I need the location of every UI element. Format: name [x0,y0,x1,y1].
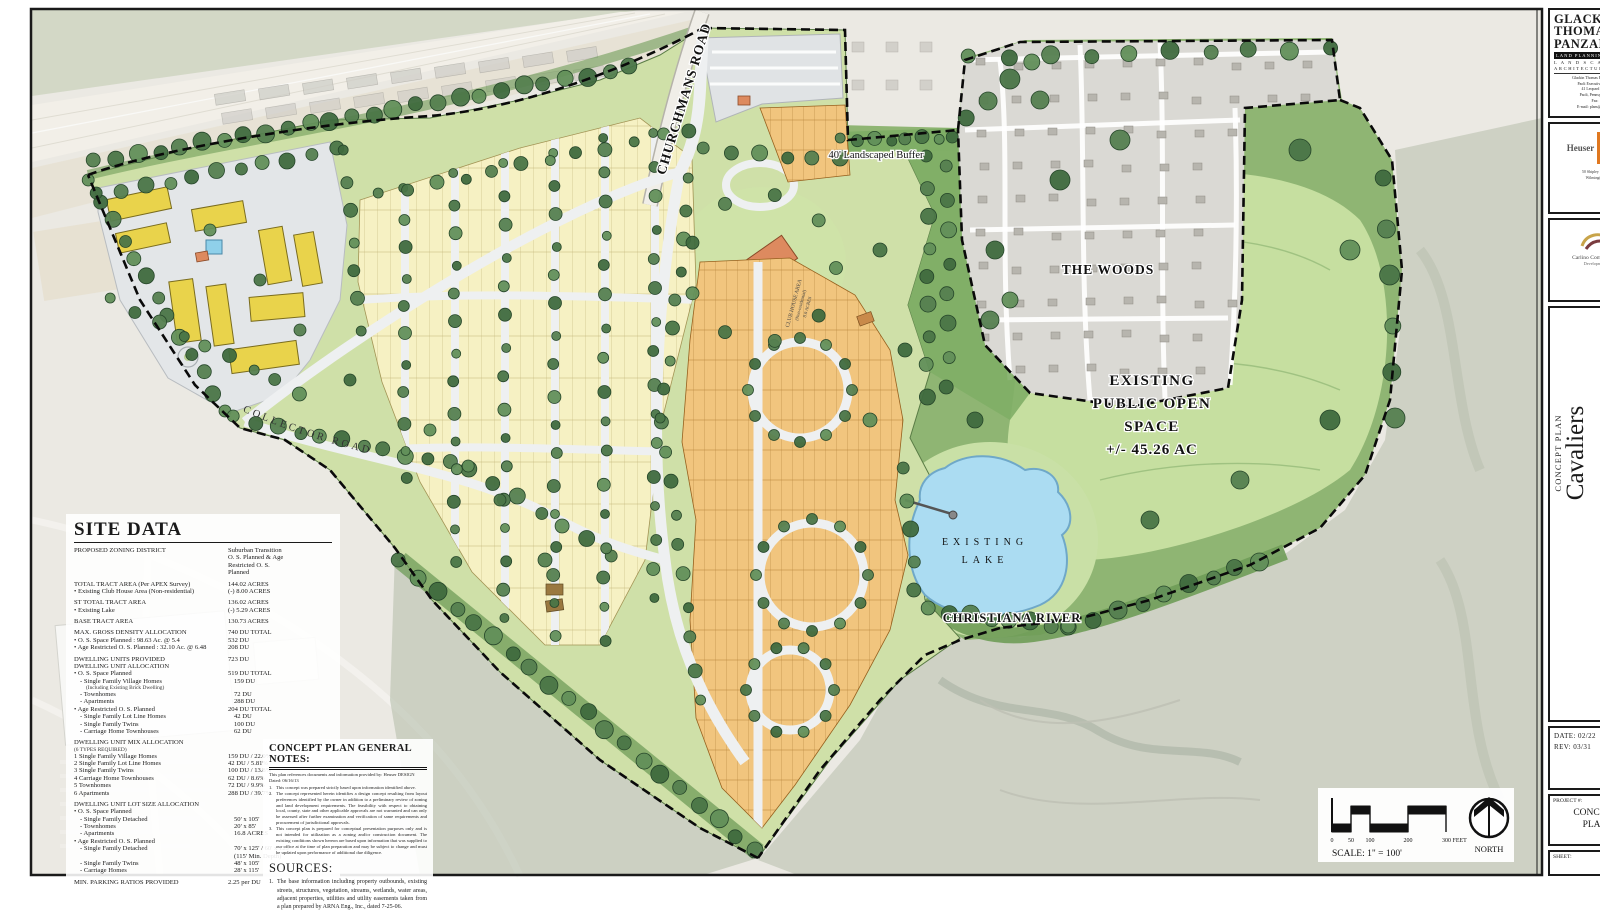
open-space-label-4: +/- 45.26 AC [1106,442,1198,458]
site-data-row: MAX. GROSS DENSITY ALLOCATION 740 DU TOT… [74,629,332,636]
pool [206,240,222,254]
site-data-row: - Townhomes 72 DU [74,691,332,698]
site-data-row: - Single Family Lot Line Homes 42 DU [74,713,332,720]
open-space-label-2: PUBLIC OPEN [1093,396,1212,412]
site-data-row: - Carriage Home Townhouses 62 DU [74,728,332,735]
landscaped-buffer-label: 40' Landscaped Buffer [829,150,925,161]
project-title-vertical: CONCEPT PLAN Cavaliers [1553,328,1589,578]
north-arrow: NORTH [1470,797,1508,854]
site-data-row: • Age Restricted O. S. Planned 204 DU TO… [74,706,332,713]
sources-title: SOURCES: [269,861,427,876]
rev-label: REV: [1554,743,1571,751]
scale-north-box: 0 50 100 200 300 FEET SCALE: 1" = 100' N… [1318,788,1514,862]
date-value: 02/22 [1578,732,1596,740]
site-data-row: - Single Family Twins 100 DU [74,721,332,728]
site-data-row: - Apartments 288 DU [74,698,332,705]
site-data-row: • Existing Lake (-) 5.29 ACRES [74,607,332,614]
titleblock-logo-carlino: Carlino Commercial Development [1548,218,1600,302]
project-number-label: PROJECT #: [1550,796,1600,804]
titleblock-sheet-box: SHEET: [1548,850,1600,876]
site-data-row: BASE TRACT AREA 130.73 ACRES [74,618,332,625]
notes-list: 1. This concept was prepared strictly ba… [269,785,427,856]
notes-intro: This plan references documents and infor… [269,772,427,784]
project-box-line-2: PLAN [1550,820,1600,832]
source-item: 1. The base information including proper… [269,878,427,910]
site-data-row: • O. S. Space Planned : 98.63 Ac. @ 5.4 … [74,637,332,644]
site-data-row: DWELLING UNITS PROVIDED 723 DU [74,656,332,663]
scale-tick-50: 50 [1348,838,1354,844]
site-data-title: SITE DATA [74,519,332,543]
heuser-address: 50 Shipley RoadWilmington [1550,170,1600,182]
firm-address: Glackin Thomas Panzak, Inc.Paoli Executi… [1554,76,1600,111]
site-data-row: • Existing Club House Area (Non-resident… [74,588,332,595]
north-label: NORTH [1475,844,1504,854]
site-data-row: • O. S. Space Planned 519 DU TOTAL [74,670,332,677]
carlino-logo-subtext: Development [1584,261,1600,266]
carlino-swirl-icon [1578,230,1600,252]
general-notes-panel: CONCEPT PLAN GENERAL NOTES: This plan re… [263,739,433,916]
firm-tagline-1: LAND PLANNING [1554,52,1600,59]
christiana-river-label: CHRISTIANA RIVER [943,611,1082,625]
scale-label: SCALE: 1" = 100' [1332,849,1402,859]
site-data-row: ST TOTAL TRACT AREA 136.02 ACRES [74,599,332,606]
sheet-label: SHEET: [1550,852,1600,860]
firm-name-3: PANZAK [1554,38,1600,50]
rev-value: 03/31 [1573,743,1591,751]
titleblock-firm: GLACKIN THOMAS PANZAK LAND PLANNING L A … [1548,8,1600,118]
note-item: 3. This concept plan is prepared for con… [269,826,427,855]
scale-tick-100: 100 [1366,838,1375,844]
site-data-row: DWELLING UNIT ALLOCATION [74,663,332,670]
lake-label-1: EXISTING [942,537,1028,548]
open-space-label-3: SPACE [1124,419,1180,435]
heuser-logo-text: Heuser [1567,143,1595,153]
site-data-row: • Age Restricted O. S. Planned : 32.10 A… [74,644,332,651]
sources-list: 1. The base information including proper… [269,878,427,910]
firm-name-2: THOMAS [1554,25,1600,37]
project-title-name: Cavaliers [1563,328,1589,578]
site-data-row: PROPOSED ZONING DISTRICT Suburban Transi… [74,547,332,577]
site-data-row: - Single Family Village Homes 159 DU [74,678,332,685]
notes-title: CONCEPT PLAN GENERAL NOTES: [269,743,427,770]
note-item: 2. The concept represented herein identi… [269,791,427,826]
firm-tagline-2: L A N D S C A P E [1554,60,1600,65]
scale-tick-0: 0 [1331,838,1334,844]
titleblock-date-box: DATE: 02/22 REV: 03/31 [1548,726,1600,790]
existing-lake [905,456,1070,615]
titleblock-project-number-box: PROJECT #: CONCEPT PLAN [1548,794,1600,846]
scale-tick-200: 200 [1404,838,1413,844]
lake-label-2: LAKE [962,555,1009,566]
open-space-label-1: EXISTING [1109,373,1194,389]
scale-tick-300: 300 FEET [1442,838,1467,844]
firm-tagline-3: ARCHITECTURE [1554,66,1600,71]
site-data-row: TOTAL TRACT AREA (Per APEX Survey) 144.0… [74,581,332,588]
the-woods-label: THE WOODS [1062,262,1154,277]
date-label: DATE: [1554,732,1576,740]
project-box-line-1: CONCEPT [1550,808,1600,820]
titleblock-logo-heuser: Heuser DESIGN 50 Shipley RoadWilmington [1548,122,1600,214]
